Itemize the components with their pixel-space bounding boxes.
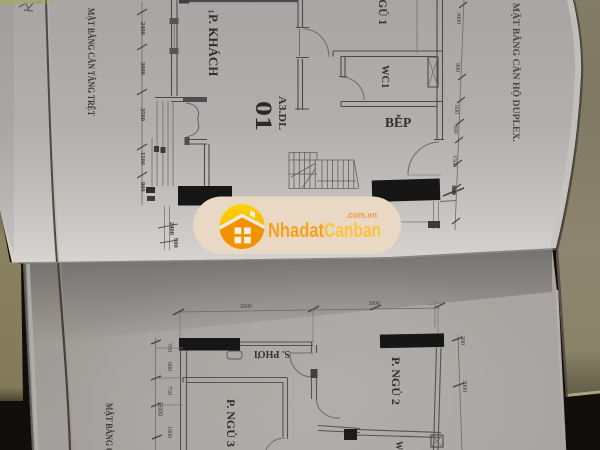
svg-text:P. NGỦ 2: P. NGỦ 2 — [389, 357, 403, 405]
svg-text:2600: 2600 — [240, 304, 252, 310]
svg-text:2400: 2400 — [139, 22, 146, 35]
svg-text:P. KHÁCH: P. KHÁCH — [206, 14, 221, 76]
svg-text:01: 01 — [251, 101, 276, 131]
svg-text:1000: 1000 — [166, 426, 172, 438]
svg-text:3500: 3500 — [139, 108, 146, 121]
svg-text:200: 200 — [459, 336, 465, 345]
svg-text:A3.DL: A3.DL — [276, 96, 287, 130]
svg-text:900: 900 — [172, 238, 179, 248]
svg-text:NGỦ 1: NGỦ 1 — [376, 0, 390, 25]
svg-text:BỄP: BỄP — [385, 115, 411, 130]
svg-text:900: 900 — [454, 63, 460, 72]
svg-text:750: 750 — [166, 386, 172, 395]
svg-text:WC1: WC1 — [379, 65, 390, 88]
svg-text:2400: 2400 — [168, 222, 175, 235]
svg-text:W: W — [394, 441, 404, 450]
svg-text:800: 800 — [166, 362, 172, 371]
svg-text:3600: 3600 — [156, 402, 164, 417]
svg-text:900: 900 — [139, 182, 146, 192]
svg-text:3000: 3000 — [139, 62, 146, 75]
svg-text:P. NGỦ 3: P. NGỦ 3 — [224, 399, 238, 447]
svg-text:.com.vn: .com.vn — [346, 210, 377, 220]
svg-text:3000: 3000 — [368, 301, 380, 307]
svg-text:3000: 3000 — [461, 380, 467, 392]
svg-text:1500: 1500 — [139, 152, 146, 165]
svg-text:Canban: Canban — [324, 219, 381, 242]
svg-text:S. PHƠI: S. PHƠI — [254, 348, 290, 359]
svg-text:3000: 3000 — [455, 12, 461, 24]
svg-text:700: 700 — [166, 343, 172, 352]
svg-text:600: 600 — [453, 105, 459, 114]
svg-text:800: 800 — [452, 125, 458, 134]
svg-text:Nhadat: Nhadat — [268, 219, 324, 242]
